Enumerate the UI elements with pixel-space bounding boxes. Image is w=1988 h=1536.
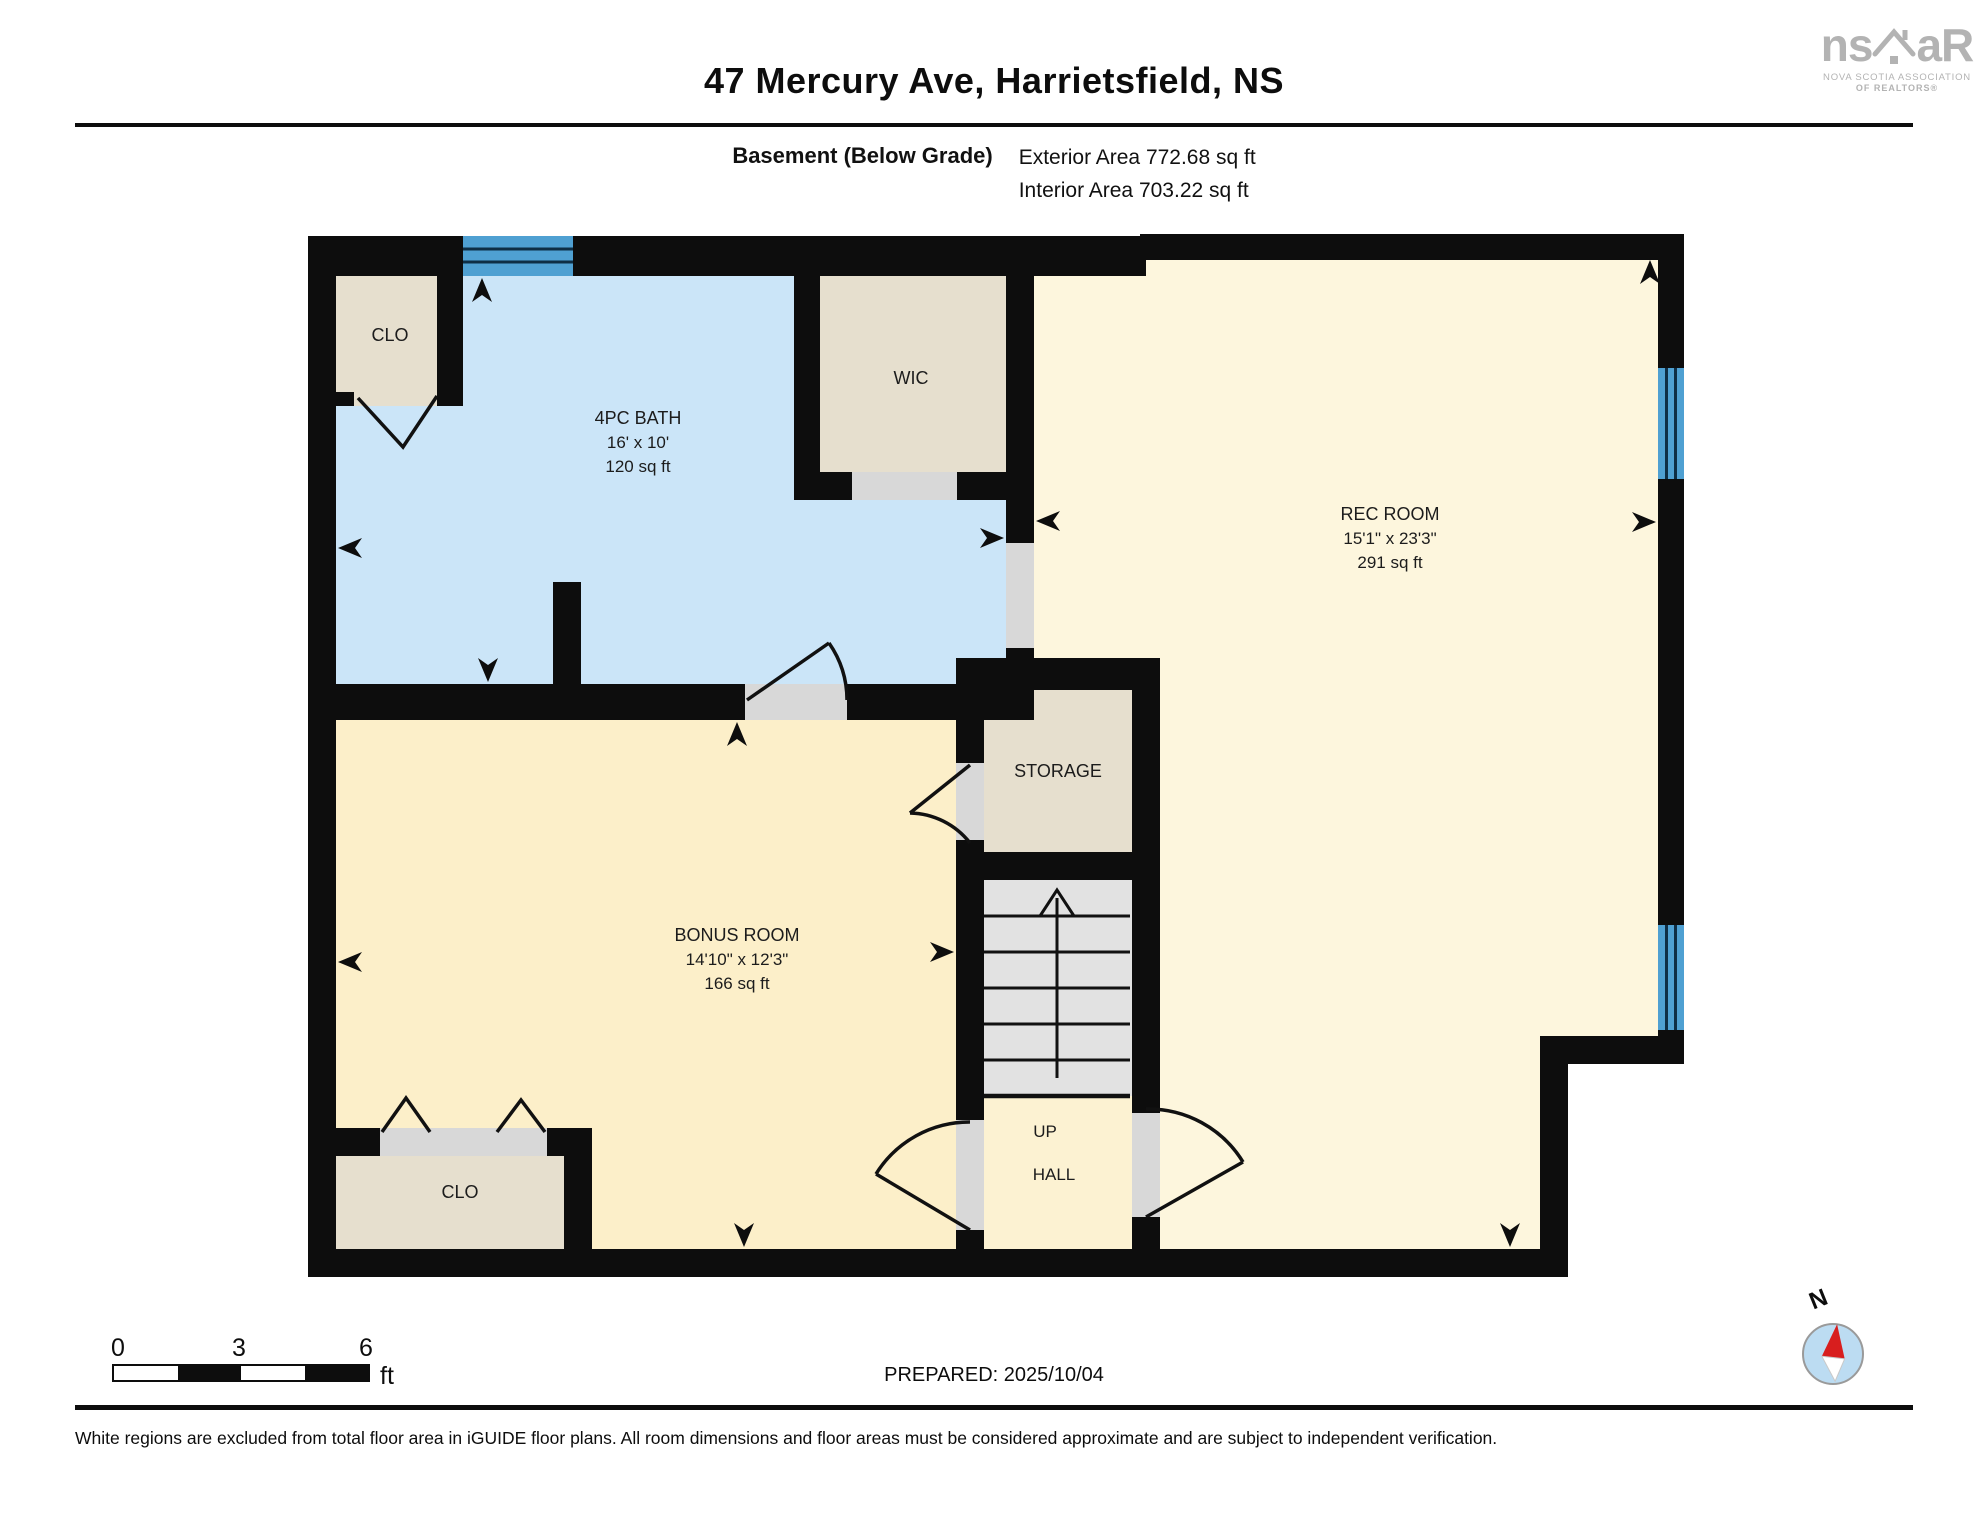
label-hall: HALL — [1033, 1165, 1076, 1184]
label-bonus-area: 166 sq ft — [704, 974, 769, 993]
label-wic: WIC — [894, 368, 929, 388]
scale-ticks: 0 3 6 — [112, 1334, 432, 1362]
footer-divider — [75, 1405, 1913, 1410]
label-rec-area: 291 sq ft — [1357, 553, 1422, 572]
compass: N — [1796, 1284, 1876, 1404]
label-bath: 4PC BATH — [595, 408, 682, 428]
label-bath-dims: 16' x 10' — [607, 433, 669, 452]
compass-rose-icon — [1796, 1284, 1876, 1404]
floorplan-drawing: CLO 4PC BATH 16' x 10' 120 sq ft WIC REC… — [0, 0, 1988, 1536]
wic-door-opening — [852, 472, 957, 500]
prepared-date: PREPARED: 2025/10/04 — [0, 1364, 1988, 1387]
window-top — [463, 236, 573, 276]
floorplan-page: 47 Mercury Ave, Harrietsfield, NS Baseme… — [0, 0, 1988, 1536]
label-storage: STORAGE — [1014, 761, 1102, 781]
hall-right-door-opening — [1132, 1113, 1160, 1217]
scale-tick-3: 3 — [232, 1334, 246, 1363]
bath-rec-opening — [1006, 543, 1034, 648]
label-rec: REC ROOM — [1341, 504, 1440, 524]
label-closet-top: CLO — [371, 325, 408, 345]
disclaimer-text: White regions are excluded from total fl… — [75, 1428, 1913, 1449]
label-bath-area: 120 sq ft — [605, 457, 670, 476]
window-right-upper — [1658, 368, 1684, 479]
scale-tick-0: 0 — [111, 1334, 125, 1363]
closet-bottom-track — [380, 1128, 547, 1156]
label-bonus-dims: 14'10" x 12'3" — [686, 950, 789, 969]
label-closet-bottom: CLO — [441, 1182, 478, 1202]
hall-left-door-opening — [956, 1120, 984, 1230]
label-up: UP — [1033, 1122, 1057, 1141]
label-bonus: BONUS ROOM — [674, 925, 799, 945]
label-rec-dims: 15'1" x 23'3" — [1343, 529, 1436, 548]
window-right-lower — [1658, 925, 1684, 1030]
scale-tick-6: 6 — [359, 1334, 373, 1363]
